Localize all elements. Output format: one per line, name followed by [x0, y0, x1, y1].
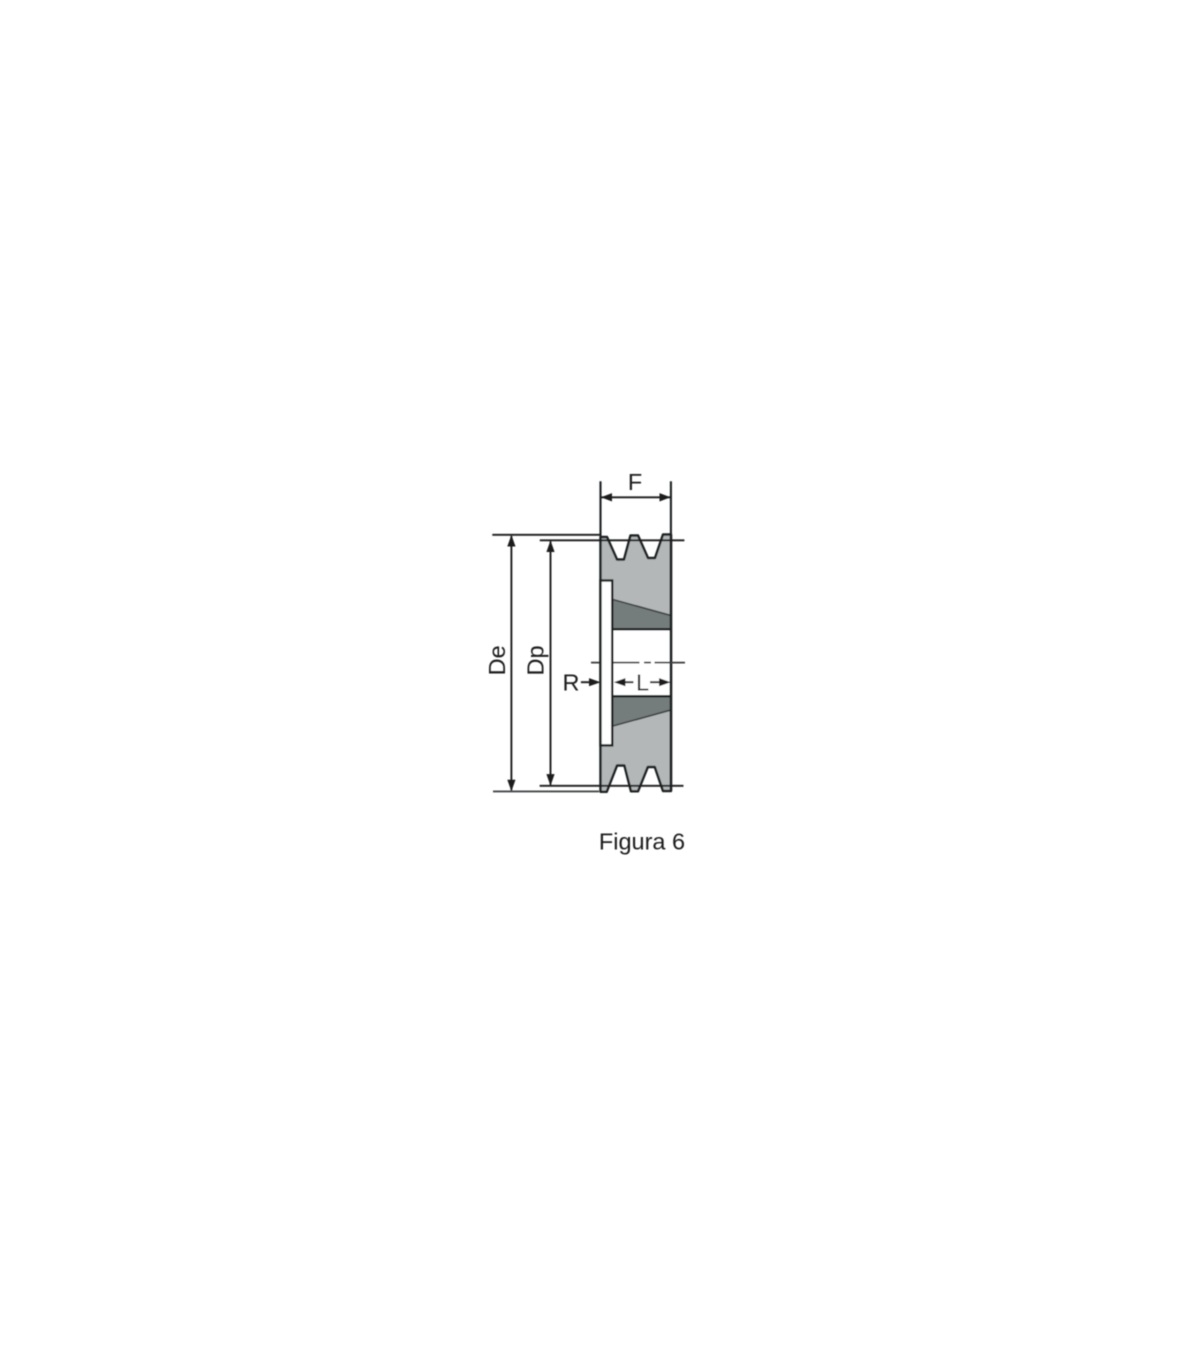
svg-text:De: De: [484, 645, 510, 675]
svg-text:R: R: [563, 669, 580, 695]
svg-text:Dp: Dp: [522, 645, 548, 675]
svg-text:F: F: [628, 469, 642, 495]
svg-text:Figura 6: Figura 6: [599, 828, 685, 854]
svg-text:L: L: [636, 669, 649, 695]
